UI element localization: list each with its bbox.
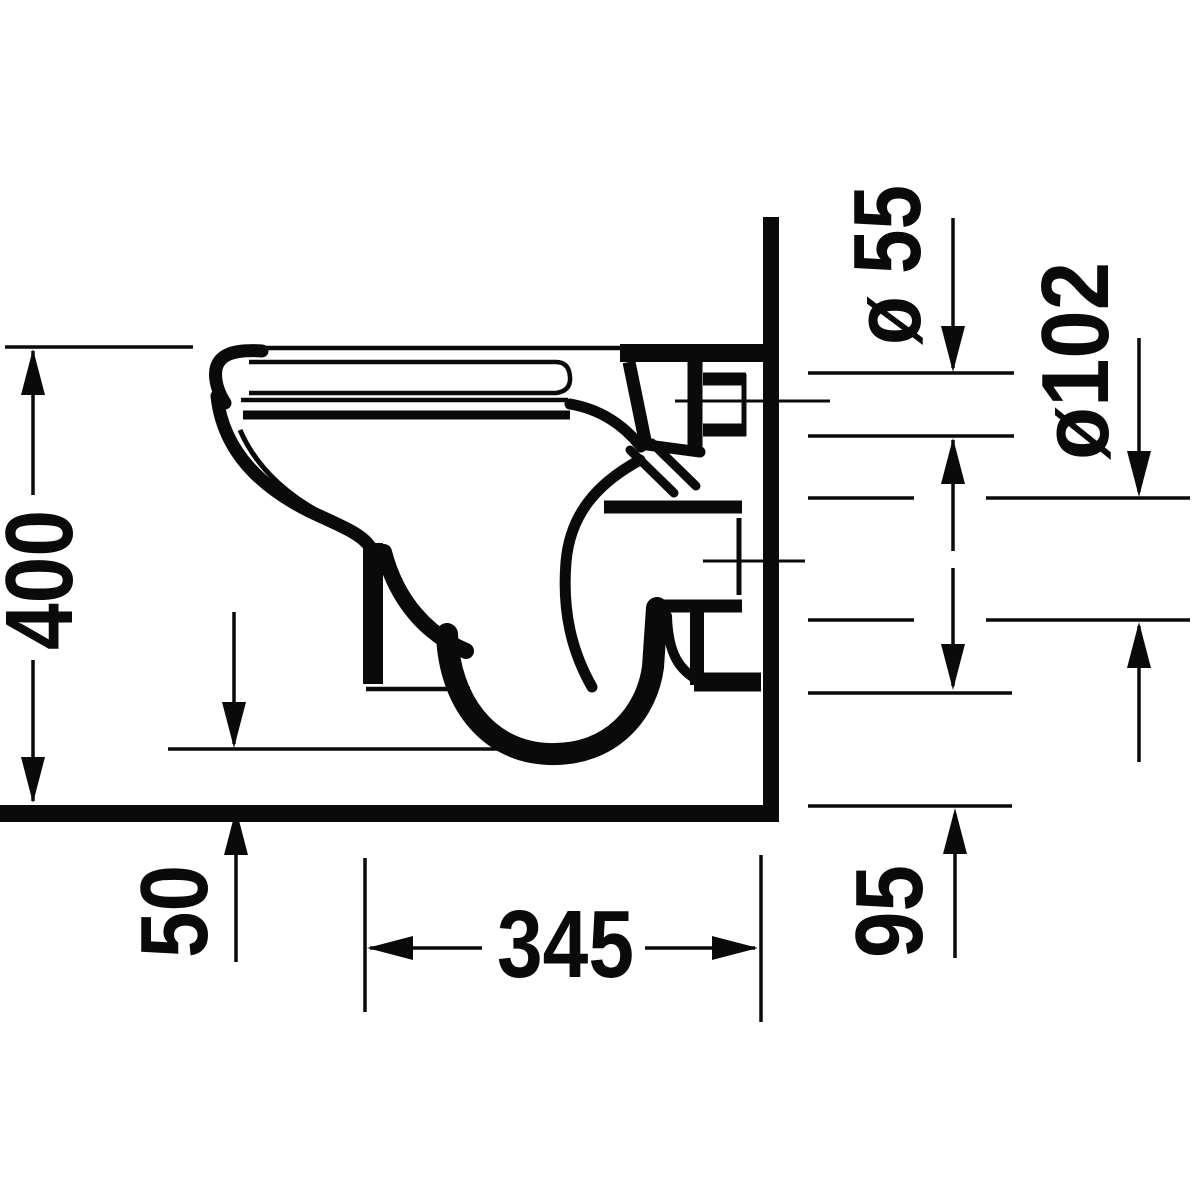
arrow-right <box>712 936 758 960</box>
arrow-up <box>941 438 965 484</box>
arrow-down <box>1127 451 1151 497</box>
trap-u-bend <box>447 608 657 754</box>
dim-label-outlet-diameter: ø102 <box>1022 262 1129 460</box>
structure <box>0 217 779 822</box>
rear-transition <box>570 404 641 447</box>
dim-bottom-depth: 345 <box>365 855 761 1022</box>
dim-label-overall-height: 400 <box>0 510 93 650</box>
arrow-down <box>222 702 246 748</box>
seat-outline <box>249 362 570 393</box>
arrow-up <box>943 808 967 854</box>
rear-deck <box>620 344 763 362</box>
arrow-down <box>21 757 45 803</box>
dim-label-floor-clearance: 50 <box>121 865 228 958</box>
toilet-profile <box>216 344 763 754</box>
dim-overall-height: 400 <box>0 347 193 803</box>
toilet-dimension-drawing: 400 50 345 95 ø 55 <box>0 0 1200 1200</box>
dim-label-outlet-clearance: 95 <box>836 865 943 958</box>
arrow-down <box>941 326 965 372</box>
arrow-left <box>367 936 413 960</box>
arrow-up <box>1127 622 1151 668</box>
floor-section <box>0 805 779 822</box>
wall-section <box>763 217 779 822</box>
dim-label-bottom-depth: 345 <box>497 891 634 998</box>
arrow-up <box>21 349 45 395</box>
dim-inlet-diameter: ø 55 <box>808 185 1014 436</box>
arrow-down <box>941 644 965 690</box>
dim-label-inlet-diameter: ø 55 <box>834 185 941 345</box>
dim-outlet-clearance: 95 <box>808 438 1012 958</box>
bowl-inner-back <box>565 460 640 687</box>
